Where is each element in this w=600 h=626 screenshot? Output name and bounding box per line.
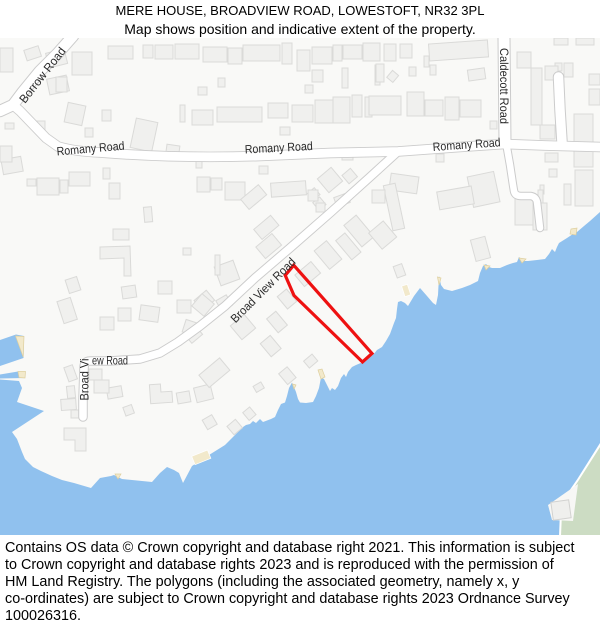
svg-text:ew Road: ew Road (92, 354, 128, 368)
svg-text:Caldecott Road: Caldecott Road (497, 48, 511, 124)
svg-text:Broad Vi: Broad Vi (78, 359, 92, 401)
